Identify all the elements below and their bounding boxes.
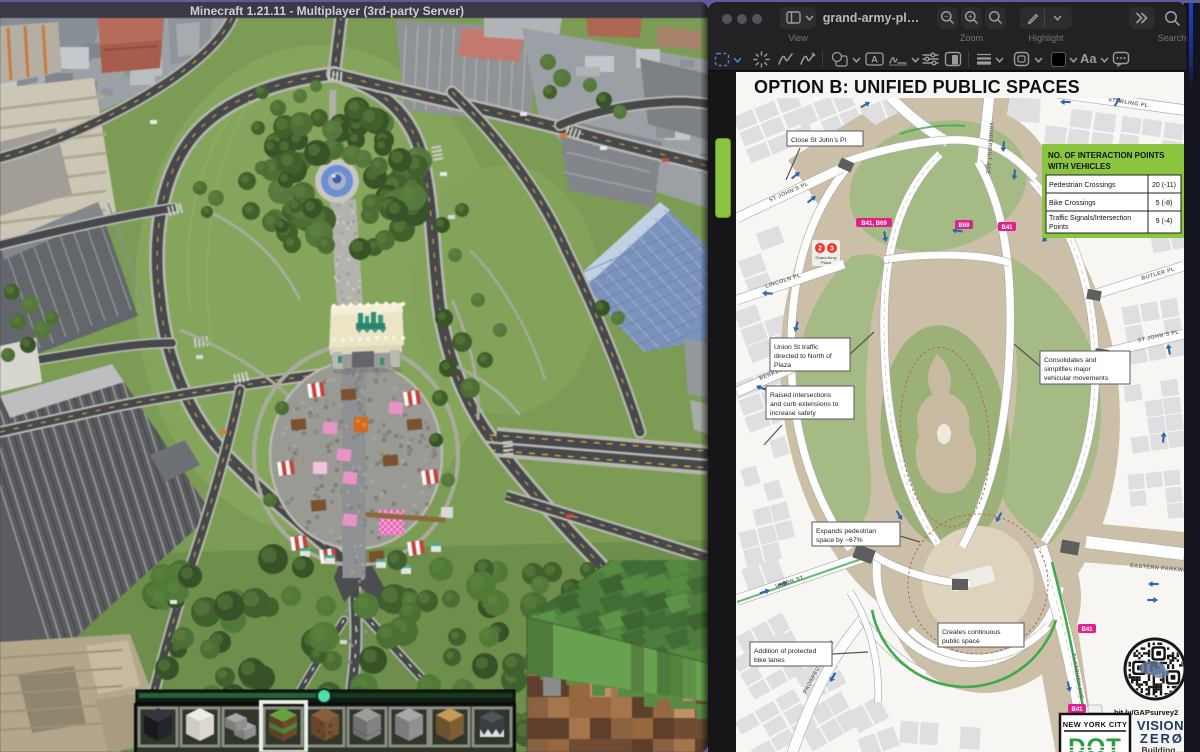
- svg-text:B41, B69: B41, B69: [861, 221, 887, 227]
- svg-text:Traffic Signals/Intersection: Traffic Signals/Intersection: [1049, 215, 1131, 222]
- svg-text:Building…: Building…: [1142, 745, 1185, 752]
- svg-text:3: 3: [830, 246, 834, 253]
- svg-text:Points: Points: [1049, 224, 1069, 231]
- svg-text:−: −: [944, 12, 949, 21]
- svg-text:20 (-11): 20 (-11): [1152, 182, 1176, 189]
- svg-text:public space: public space: [942, 638, 980, 645]
- svg-text:2: 2: [818, 246, 822, 253]
- svg-text:B41: B41: [1001, 225, 1013, 231]
- svg-text:9 (-4): 9 (-4): [1156, 218, 1173, 225]
- svg-text:A: A: [871, 55, 878, 66]
- svg-text:space by ~67%: space by ~67%: [816, 537, 863, 544]
- svg-text:Creates continuous: Creates continuous: [942, 629, 1001, 636]
- svg-text:ZERØ: ZERØ: [1140, 731, 1184, 746]
- svg-text:Bike Crossings: Bike Crossings: [1049, 200, 1096, 207]
- svg-text:Union St traffic: Union St traffic: [774, 344, 819, 351]
- svg-text:B41: B41: [1071, 707, 1083, 713]
- svg-text:B41: B41: [1081, 627, 1093, 633]
- svg-text:WITH VEHICLES: WITH VEHICLES: [1048, 162, 1111, 171]
- svg-text:Pedestrian Crossings: Pedestrian Crossings: [1049, 182, 1116, 189]
- svg-text:Raised intersections: Raised intersections: [770, 392, 832, 399]
- svg-text:Plaza: Plaza: [774, 362, 791, 369]
- svg-text:Consolidates and: Consolidates and: [1044, 357, 1097, 364]
- svg-text:Close St John’s Pl: Close St John’s Pl: [791, 137, 847, 144]
- svg-text:+: +: [968, 12, 973, 21]
- svg-text:Plaza: Plaza: [821, 260, 832, 265]
- svg-text:NO. OF INTERACTION POINTS: NO. OF INTERACTION POINTS: [1048, 151, 1165, 160]
- svg-text:simplifies major: simplifies major: [1044, 366, 1092, 373]
- svg-text:B69: B69: [958, 223, 970, 229]
- svg-text:vehicular movements: vehicular movements: [1044, 375, 1109, 382]
- svg-text:NEW YORK CITY: NEW YORK CITY: [1063, 720, 1128, 729]
- svg-text:Expands pedestrian: Expands pedestrian: [816, 528, 876, 535]
- svg-text:OPTION B: UNIFIED PUBLIC SPACE: OPTION B: UNIFIED PUBLIC SPACES: [754, 77, 1080, 97]
- svg-text:and curb extensions to: and curb extensions to: [770, 401, 839, 408]
- svg-text:bike lanes: bike lanes: [754, 657, 785, 664]
- svg-text:5 (-8): 5 (-8): [1156, 200, 1173, 207]
- svg-text:increase safety: increase safety: [770, 410, 816, 417]
- svg-text:Addition of protected: Addition of protected: [754, 648, 817, 655]
- svg-text:DOT: DOT: [1068, 734, 1122, 752]
- svg-text:directed to North of: directed to North of: [774, 353, 832, 360]
